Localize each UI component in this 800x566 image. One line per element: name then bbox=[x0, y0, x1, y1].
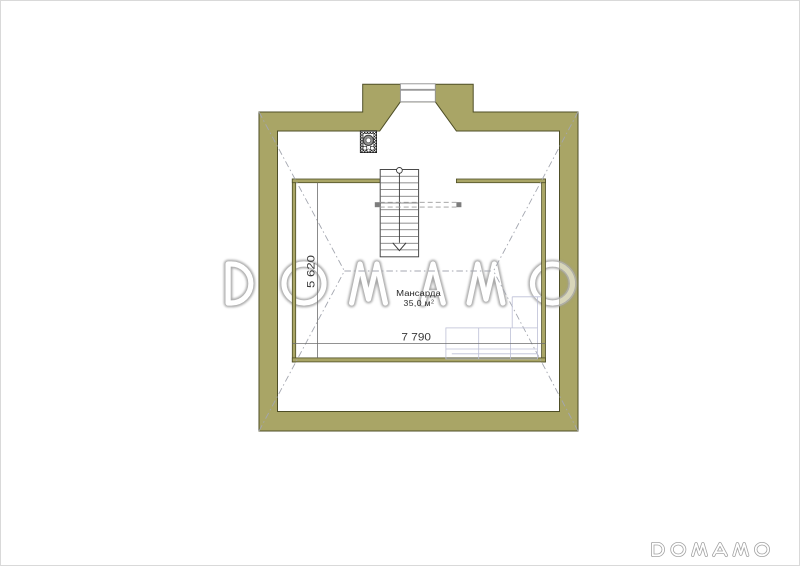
svg-text:35,0 м2: 35,0 м2 bbox=[404, 298, 435, 308]
svg-text:5 620: 5 620 bbox=[306, 255, 318, 288]
svg-text:7 790: 7 790 bbox=[401, 331, 431, 343]
